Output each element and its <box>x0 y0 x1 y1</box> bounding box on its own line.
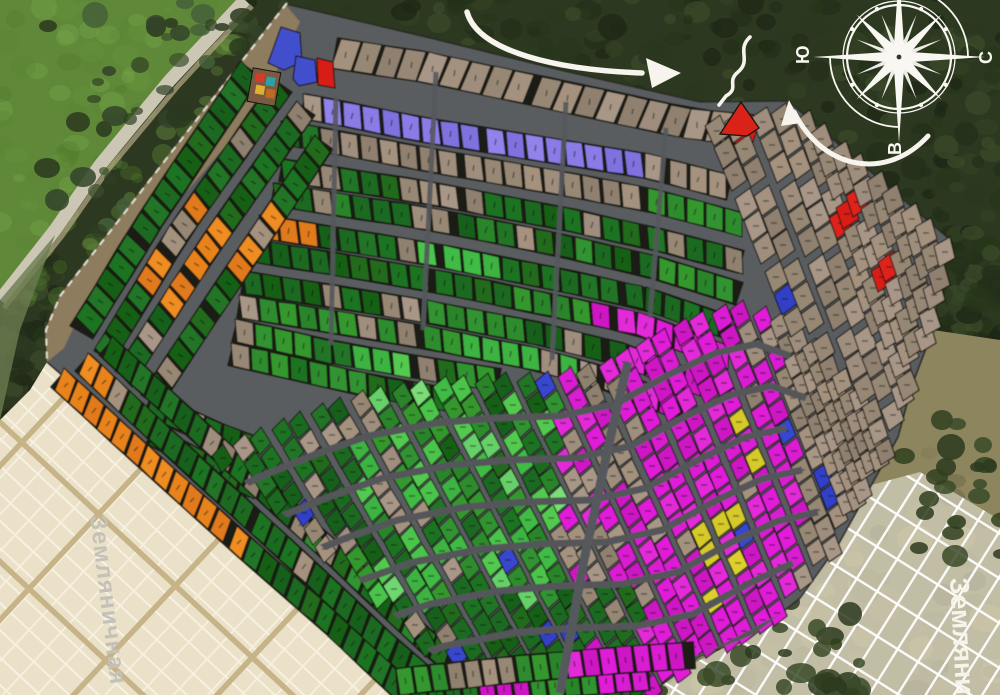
svg-text:Ю: Ю <box>793 45 813 64</box>
svg-text:С: С <box>976 51 996 64</box>
svg-text:В: В <box>885 142 905 155</box>
svg-text:Земляни: Земляни <box>944 577 980 695</box>
